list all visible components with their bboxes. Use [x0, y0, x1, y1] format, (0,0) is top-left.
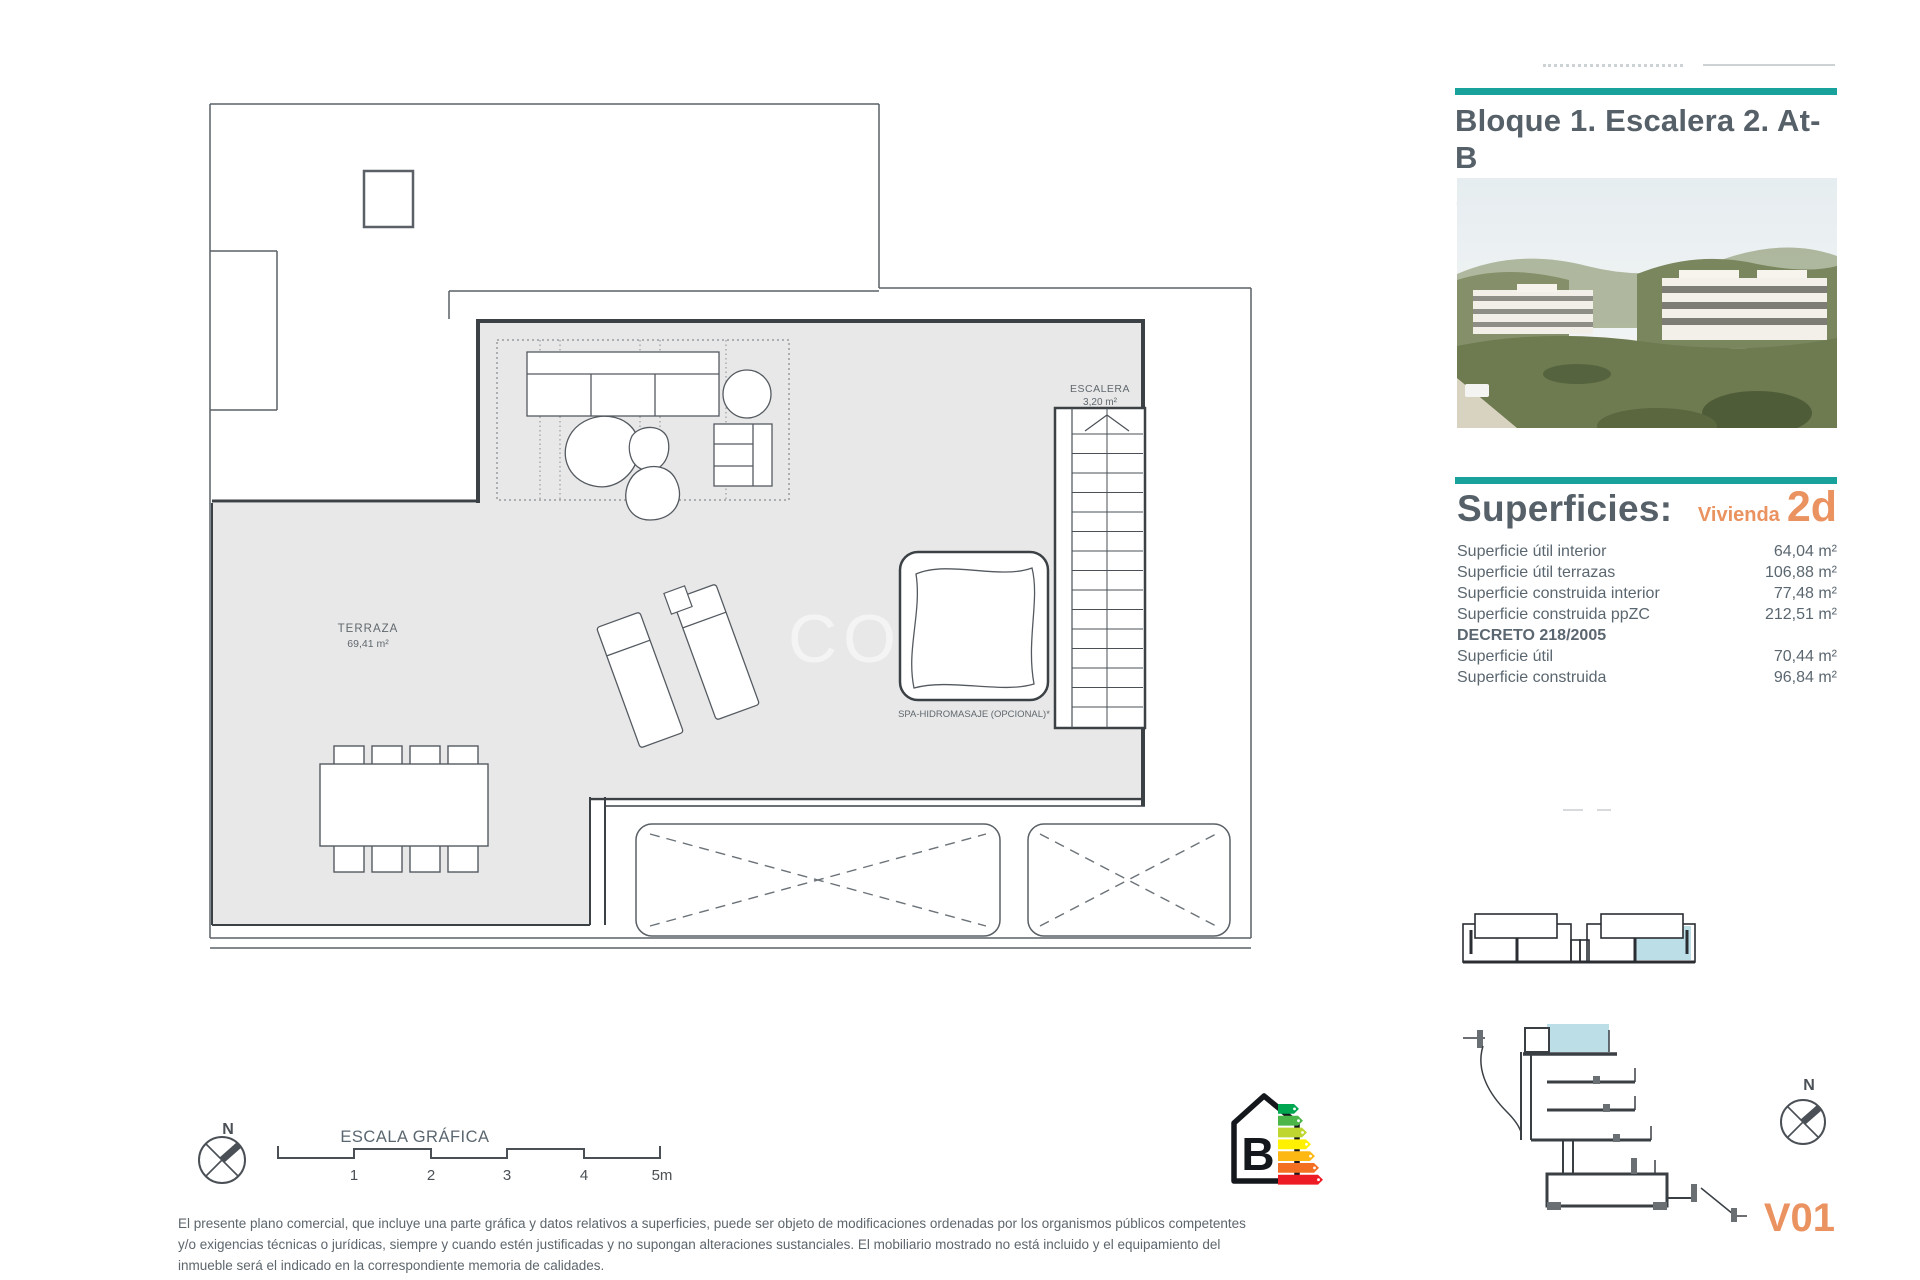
- photo-van: [1465, 384, 1489, 397]
- row-value: 212,51 m²: [1765, 604, 1837, 625]
- key-plan: [1459, 910, 1699, 970]
- decreto-row: Superficie útil 70,44 m²: [1457, 646, 1837, 667]
- north-compass-right: N: [1773, 1072, 1837, 1154]
- scale-tick: 1: [350, 1167, 358, 1184]
- vivienda-code: 2d: [1787, 492, 1837, 522]
- decreto-block: DECRETO 218/2005 Superficie útil 70,44 m…: [1457, 625, 1837, 688]
- photo-bush: [1543, 364, 1611, 384]
- section-highlight-unit: [1547, 1024, 1609, 1052]
- chimney: [364, 171, 413, 227]
- stair-room-label: ESCALERA: [1070, 383, 1130, 395]
- building-photo: [1457, 178, 1837, 428]
- decreto-row: Superficie construida 96,84 m²: [1457, 667, 1837, 688]
- redacted-mini-marks: [1563, 798, 1625, 816]
- planter-large: [636, 824, 1000, 936]
- cross-section: [1455, 1012, 1747, 1222]
- scale-tick: 3: [503, 1167, 511, 1184]
- energy-rating-badge: B: [1234, 1096, 1323, 1185]
- sofa: [527, 352, 719, 416]
- redacted-developer-text: [1543, 64, 1683, 67]
- accent-rule-top: [1455, 88, 1837, 95]
- watermark: CO: [788, 601, 902, 677]
- dining-table: [320, 764, 488, 846]
- photo-right-buildings: [1662, 270, 1827, 340]
- graphic-scale: ESCALA GRÁFICA 1 2 3 4 5m: [278, 1127, 672, 1184]
- row-value: 106,88 m²: [1765, 562, 1837, 583]
- vivienda-badge: Vivienda 2d: [1698, 492, 1837, 527]
- superficie-row: Superficie construida ppZC 212,51 m²: [1457, 604, 1837, 625]
- scale-tick: 4: [580, 1167, 588, 1184]
- scale-title: ESCALA GRÁFICA: [340, 1127, 489, 1146]
- row-value: 96,84 m²: [1774, 667, 1837, 688]
- north-compass-left: [199, 1137, 245, 1183]
- scale-tick: 2: [427, 1167, 435, 1184]
- unit-title-line1: Bloque 1. Escalera 2. At-B: [1455, 102, 1837, 176]
- row-label: Superficie construida ppZC: [1457, 604, 1650, 625]
- row-value: 70,44 m²: [1774, 646, 1837, 667]
- accent-rule-superficies: [1455, 477, 1837, 484]
- plan-sheet: ESCALERA 3,20 m²: [0, 0, 1920, 1280]
- row-label: Superficie construida: [1457, 667, 1606, 688]
- superficies-title: Superficies:: [1457, 488, 1672, 530]
- redacted-line: [1703, 64, 1835, 66]
- scale-bar: [278, 1146, 660, 1158]
- energy-bars: [1278, 1104, 1323, 1185]
- row-value: 77,48 m²: [1774, 583, 1837, 604]
- decreto-title: DECRETO 218/2005: [1457, 625, 1837, 646]
- superficies-table: Superficie útil interior 64,04 m² Superf…: [1457, 541, 1837, 625]
- terrace-area: 69,41 m²: [347, 638, 389, 650]
- vivienda-label: Vivienda: [1698, 504, 1780, 527]
- terrace-label: TERRAZA: [338, 623, 399, 635]
- row-label: Superficie útil: [1457, 646, 1553, 667]
- legal-disclaimer: El presente plano comercial, que incluye…: [178, 1214, 1246, 1277]
- staircase: [1055, 408, 1145, 728]
- floor-plan: ESCALERA 3,20 m²: [0, 0, 1350, 1280]
- superficie-row: Superficie útil interior 64,04 m²: [1457, 541, 1837, 562]
- row-label: Superficie útil interior: [1457, 541, 1606, 562]
- superficie-row: Superficie útil terrazas 106,88 m²: [1457, 562, 1837, 583]
- north-label-right: N: [1803, 1077, 1815, 1094]
- scale-tick: 5m: [652, 1167, 673, 1184]
- planter-small: [1028, 824, 1230, 936]
- north-label-left: N: [222, 1121, 234, 1138]
- row-label: Superficie construida interior: [1457, 583, 1660, 604]
- version-label: V01: [1764, 1196, 1835, 1241]
- info-panel: Bloque 1. Escalera 2. At-B 1-2-At-B: [1455, 0, 1837, 1280]
- row-value: 64,04 m²: [1774, 541, 1837, 562]
- energy-rating-letter: B: [1241, 1128, 1274, 1180]
- stair-room-area: 3,20 m²: [1083, 397, 1118, 408]
- row-label: Superficie útil terrazas: [1457, 562, 1615, 583]
- spa-label: SPA-HIDROMASAJE (OPCIONAL)*: [898, 709, 1050, 720]
- superficie-row: Superficie construida interior 77,48 m²: [1457, 583, 1837, 604]
- shelf-unit: [714, 424, 772, 486]
- photo-left-buildings: [1473, 284, 1593, 334]
- round-table: [723, 370, 771, 418]
- spa-hydromassage: [900, 552, 1048, 700]
